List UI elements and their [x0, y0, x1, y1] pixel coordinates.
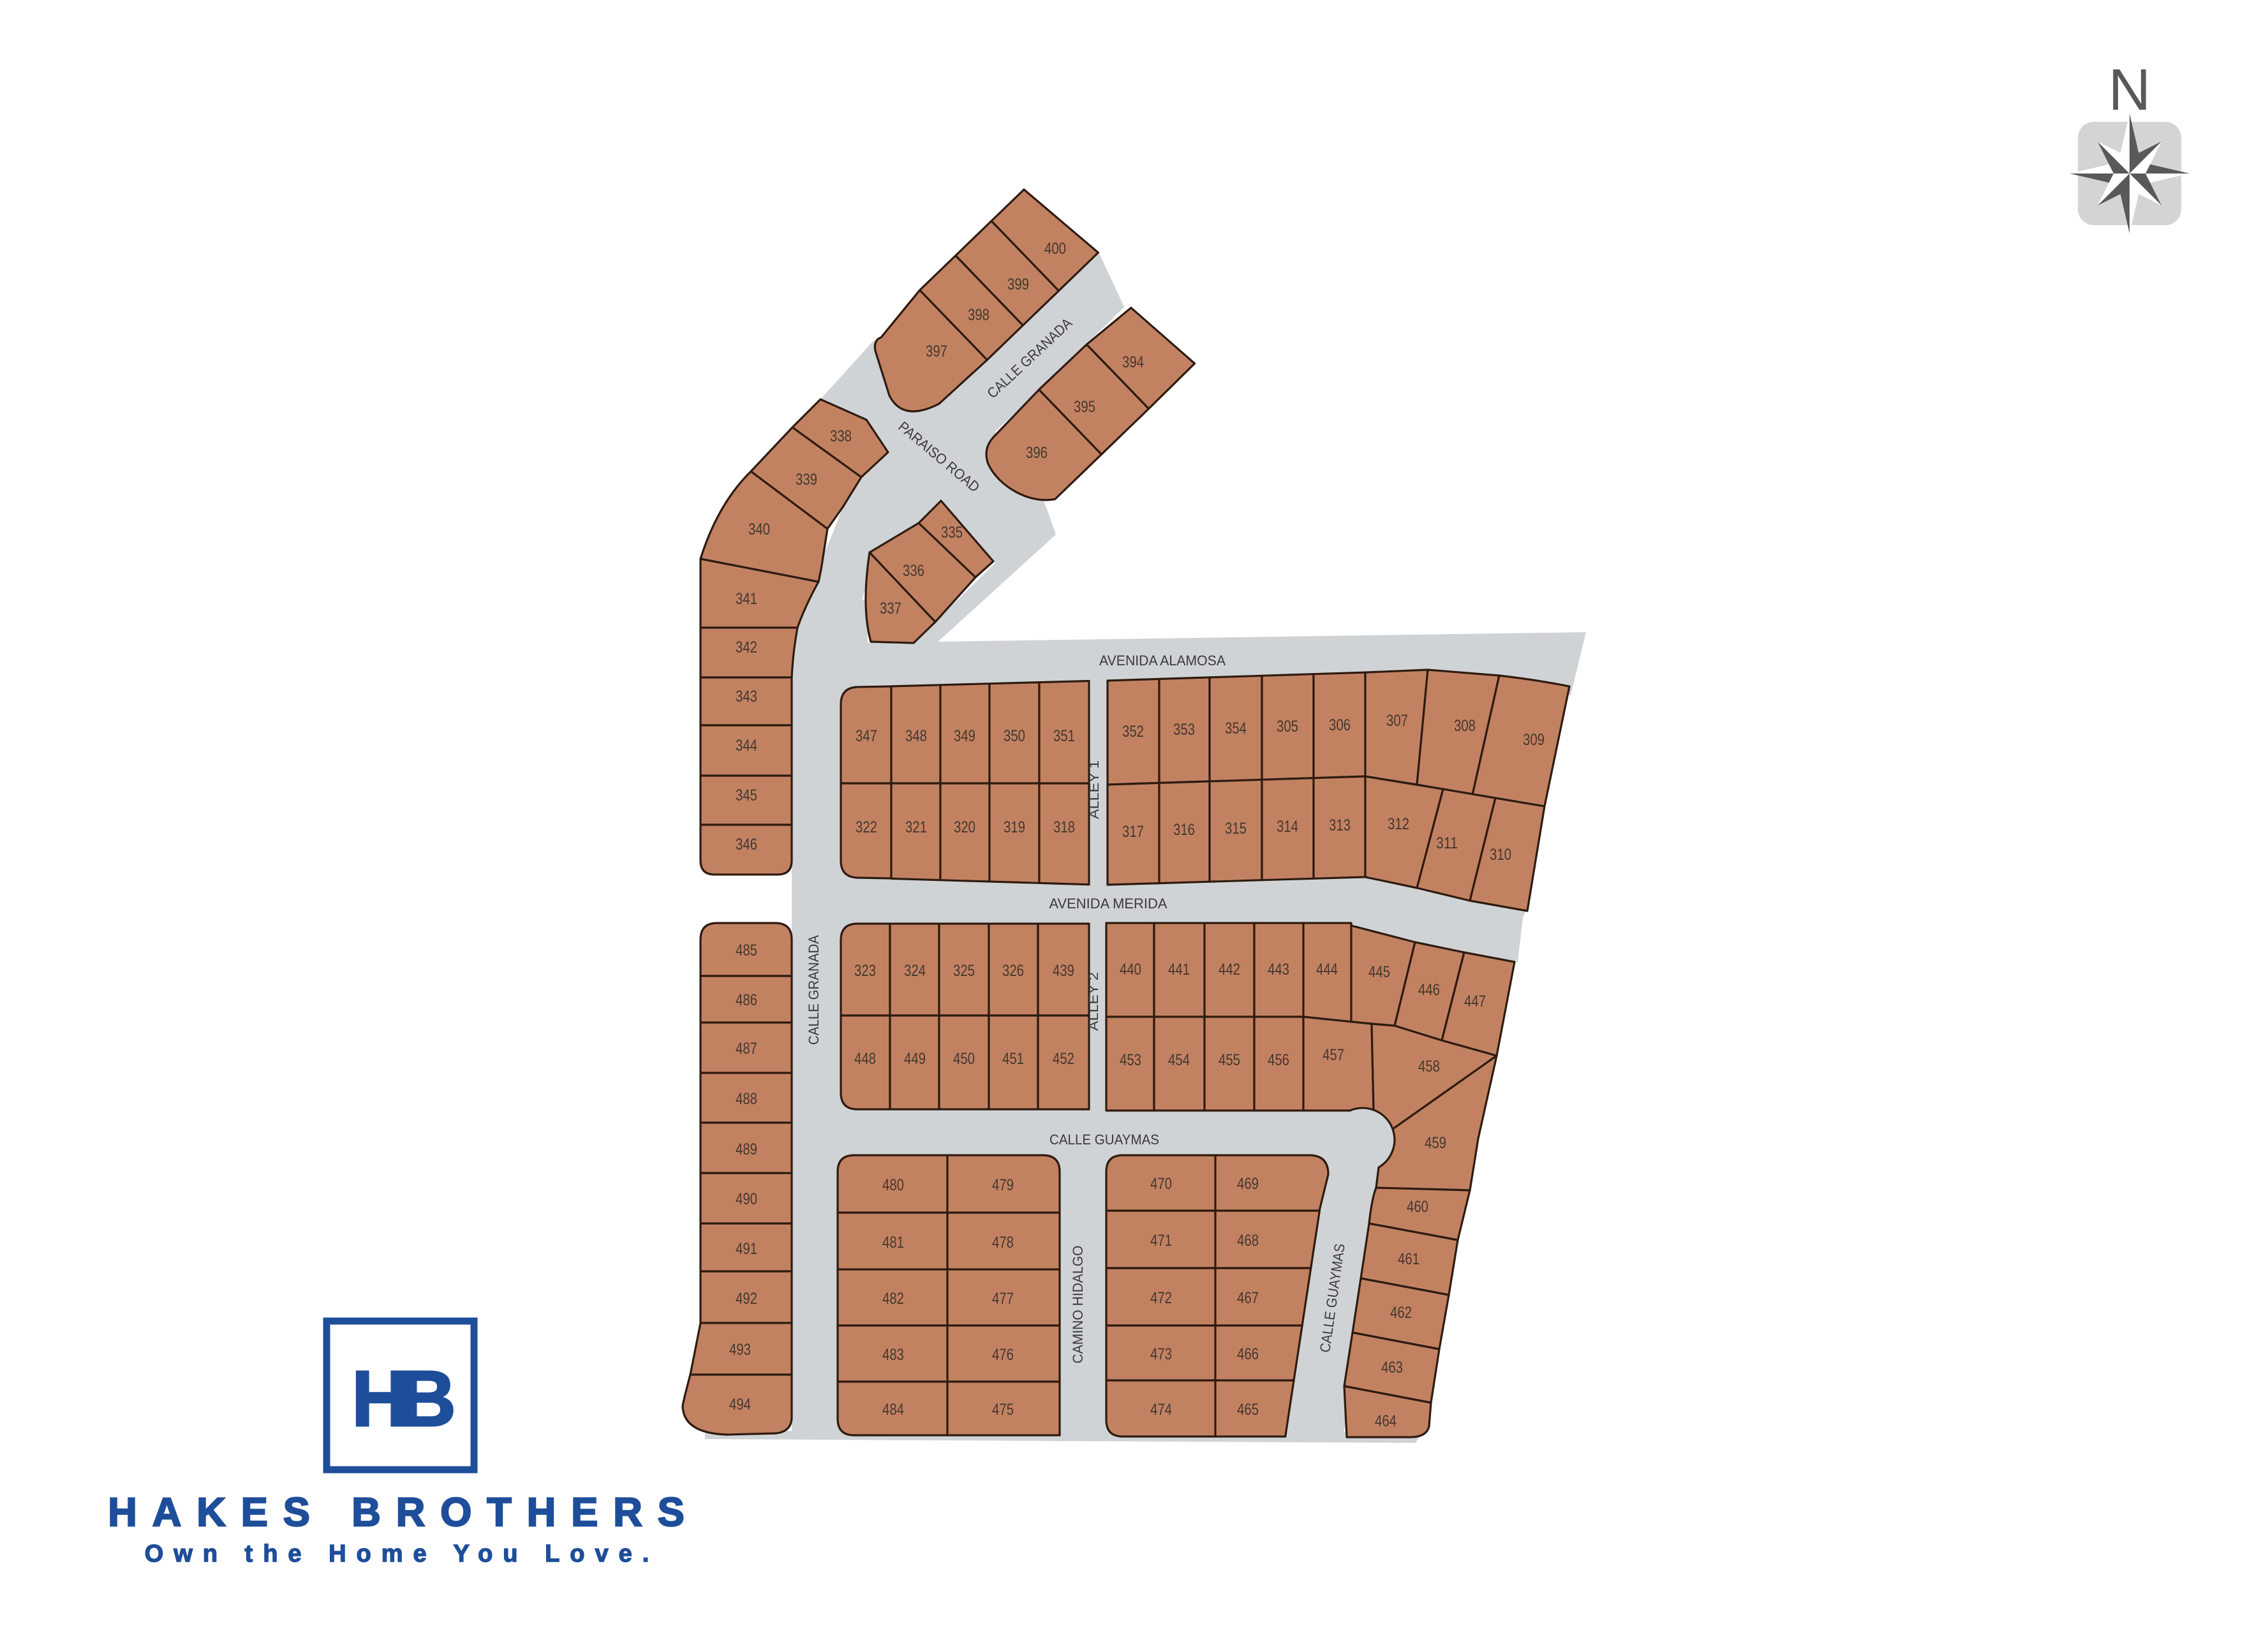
svg-text:306: 306: [1329, 716, 1351, 734]
svg-text:439: 439: [1053, 962, 1074, 980]
svg-text:314: 314: [1277, 818, 1298, 836]
svg-text:336: 336: [903, 562, 924, 580]
svg-text:319: 319: [1004, 818, 1025, 836]
svg-text:453: 453: [1120, 1051, 1141, 1069]
svg-text:344: 344: [736, 737, 757, 755]
svg-text:350: 350: [1004, 727, 1025, 745]
svg-text:399: 399: [1007, 276, 1029, 293]
svg-text:322: 322: [856, 818, 877, 836]
svg-text:307: 307: [1386, 712, 1408, 730]
svg-text:338: 338: [830, 427, 852, 445]
svg-text:488: 488: [736, 1090, 757, 1108]
svg-text:447: 447: [1464, 993, 1486, 1010]
svg-text:ALLEY 2: ALLEY 2: [1086, 972, 1101, 1031]
svg-text:446: 446: [1418, 981, 1440, 999]
svg-text:489: 489: [736, 1141, 757, 1158]
svg-text:313: 313: [1329, 816, 1351, 834]
svg-text:337: 337: [880, 600, 901, 617]
svg-text:351: 351: [1053, 727, 1075, 745]
svg-text:462: 462: [1390, 1304, 1412, 1322]
svg-text:451: 451: [1002, 1050, 1024, 1068]
svg-text:470: 470: [1150, 1175, 1172, 1193]
svg-text:AVENIDA MERIDA: AVENIDA MERIDA: [1049, 896, 1167, 912]
svg-text:485: 485: [736, 942, 757, 959]
svg-text:CALLE GRANADA: CALLE GRANADA: [806, 935, 822, 1045]
svg-text:310: 310: [1490, 846, 1511, 864]
svg-text:441: 441: [1168, 961, 1190, 979]
svg-text:396: 396: [1026, 444, 1048, 462]
svg-text:467: 467: [1237, 1289, 1259, 1307]
svg-text:444: 444: [1316, 961, 1338, 979]
svg-text:308: 308: [1454, 717, 1476, 735]
svg-text:479: 479: [992, 1176, 1014, 1194]
svg-text:347: 347: [856, 727, 877, 745]
svg-text:Own the Home You Love.: Own the Home You Love.: [145, 1541, 660, 1567]
svg-text:471: 471: [1150, 1232, 1172, 1250]
svg-text:493: 493: [729, 1341, 751, 1359]
svg-text:474: 474: [1150, 1401, 1172, 1419]
svg-text:463: 463: [1381, 1359, 1403, 1377]
svg-text:456: 456: [1268, 1051, 1289, 1069]
svg-text:309: 309: [1523, 731, 1545, 749]
svg-text:484: 484: [882, 1401, 904, 1419]
svg-text:ALLEY 1: ALLEY 1: [1087, 760, 1102, 819]
svg-text:464: 464: [1375, 1412, 1397, 1430]
svg-text:AVENIDA ALAMOSA: AVENIDA ALAMOSA: [1099, 653, 1226, 669]
svg-text:398: 398: [968, 306, 989, 324]
svg-text:311: 311: [1436, 834, 1458, 852]
svg-text:315: 315: [1225, 820, 1247, 838]
svg-text:466: 466: [1237, 1345, 1259, 1363]
svg-text:469: 469: [1237, 1175, 1259, 1193]
svg-text:340: 340: [748, 521, 770, 538]
svg-text:491: 491: [736, 1240, 757, 1258]
svg-text:353: 353: [1173, 721, 1195, 739]
svg-text:397: 397: [926, 343, 947, 360]
svg-text:440: 440: [1120, 961, 1141, 979]
svg-text:448: 448: [854, 1050, 876, 1068]
svg-text:335: 335: [941, 524, 963, 542]
svg-text:445: 445: [1368, 963, 1390, 981]
svg-text:455: 455: [1219, 1051, 1240, 1069]
svg-text:317: 317: [1122, 823, 1144, 841]
svg-text:480: 480: [882, 1176, 904, 1194]
svg-text:325: 325: [953, 962, 975, 980]
svg-text:458: 458: [1418, 1058, 1440, 1075]
svg-text:341: 341: [736, 590, 757, 608]
svg-text:320: 320: [954, 818, 975, 836]
svg-text:CAMINO HIDALGO: CAMINO HIDALGO: [1070, 1246, 1086, 1364]
svg-text:343: 343: [736, 688, 757, 706]
svg-text:352: 352: [1122, 723, 1144, 741]
svg-text:345: 345: [736, 787, 757, 804]
svg-text:476: 476: [992, 1346, 1014, 1364]
svg-text:305: 305: [1277, 718, 1298, 735]
svg-text:460: 460: [1407, 1198, 1428, 1216]
svg-text:486: 486: [736, 991, 757, 1009]
svg-text:316: 316: [1173, 821, 1195, 839]
svg-text:443: 443: [1268, 961, 1289, 979]
svg-text:349: 349: [954, 727, 975, 745]
svg-text:CALLE GUAYMAS: CALLE GUAYMAS: [1049, 1132, 1159, 1148]
svg-text:348: 348: [905, 727, 927, 745]
svg-text:482: 482: [882, 1290, 904, 1308]
svg-text:400: 400: [1044, 240, 1066, 258]
svg-text:468: 468: [1237, 1232, 1259, 1250]
svg-text:487: 487: [736, 1040, 757, 1058]
svg-text:394: 394: [1122, 353, 1144, 371]
svg-text:318: 318: [1053, 818, 1075, 836]
svg-text:483: 483: [882, 1346, 904, 1364]
svg-text:339: 339: [796, 471, 817, 489]
svg-text:449: 449: [904, 1050, 926, 1068]
svg-text:HAKES BROTHERS: HAKES BROTHERS: [108, 1490, 700, 1535]
svg-text:473: 473: [1150, 1345, 1172, 1363]
svg-text:N: N: [2109, 57, 2151, 122]
svg-text:324: 324: [904, 962, 926, 980]
svg-text:454: 454: [1168, 1051, 1190, 1069]
svg-text:442: 442: [1219, 961, 1240, 979]
svg-text:465: 465: [1237, 1401, 1259, 1419]
svg-text:346: 346: [736, 836, 757, 853]
svg-text:475: 475: [992, 1401, 1014, 1419]
svg-text:490: 490: [736, 1190, 757, 1208]
svg-text:461: 461: [1398, 1250, 1419, 1268]
svg-text:478: 478: [992, 1234, 1014, 1252]
svg-text:321: 321: [905, 818, 927, 836]
svg-text:450: 450: [953, 1050, 975, 1068]
svg-text:354: 354: [1225, 720, 1247, 737]
svg-text:323: 323: [854, 962, 876, 980]
svg-text:326: 326: [1002, 962, 1024, 980]
svg-text:452: 452: [1053, 1050, 1074, 1068]
svg-text:477: 477: [992, 1290, 1014, 1308]
svg-text:459: 459: [1425, 1134, 1446, 1152]
svg-text:494: 494: [729, 1396, 751, 1414]
svg-text:312: 312: [1388, 815, 1409, 833]
svg-text:481: 481: [882, 1234, 904, 1252]
svg-text:HB: HB: [352, 1356, 453, 1443]
svg-text:492: 492: [736, 1290, 757, 1308]
svg-text:342: 342: [736, 639, 757, 656]
svg-text:457: 457: [1323, 1046, 1344, 1064]
svg-text:395: 395: [1074, 398, 1095, 416]
svg-text:472: 472: [1150, 1289, 1172, 1307]
